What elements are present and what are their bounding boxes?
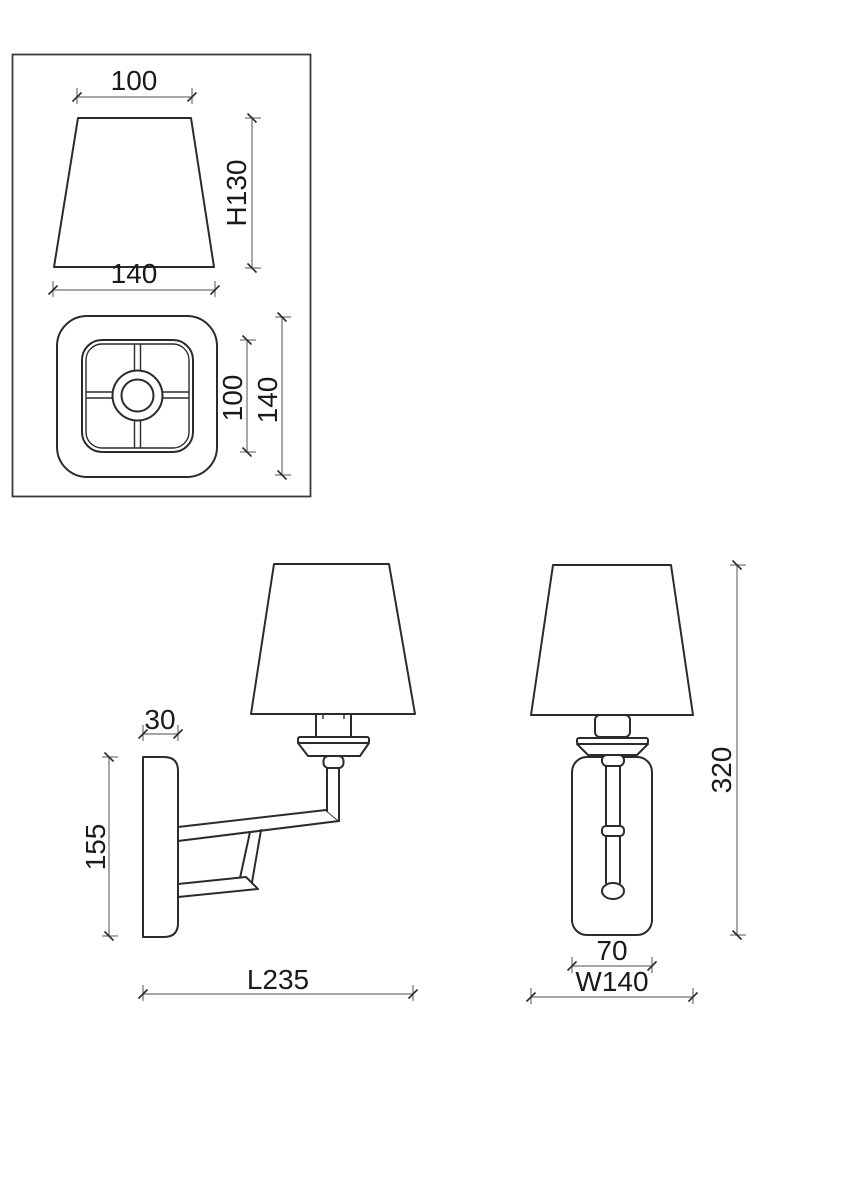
dim-label-shade-bottom-width: 140 [111,258,158,289]
shade-trapezoid [54,118,214,267]
sconce-front-view: 320 70 W140 [531,565,737,997]
stem-bead-front [602,826,624,836]
dim-label-topview-outer: 140 [252,377,283,424]
shade-side [251,564,415,714]
sconce-side-view: 30 155 L235 [80,564,415,995]
socket-side [316,714,351,737]
dim-label-plate-height: 155 [80,824,111,871]
stem-collar-side [324,756,344,768]
lamp-dimension-drawing: 100 140 H130 100 140 [0,0,847,1200]
dim-label-projection-length: L235 [247,964,309,995]
lower-arm [178,877,258,897]
dim-label-shade-width: W140 [575,966,648,997]
upper-arm [178,810,339,841]
socket-ring-inner [122,380,154,412]
dim-label-topview-inner: 100 [217,375,248,422]
technical-drawing-sheet: 100 140 H130 100 140 [0,0,847,1200]
dim-label-shade-height: H130 [221,160,252,227]
inset-panel: 100 140 H130 100 140 [13,55,311,497]
bobeche-rim-front [577,738,648,744]
bobeche-cone-front [577,744,648,755]
stem-collar-front [602,755,624,766]
shade-front [531,565,693,715]
dim-label-plate-depth: 30 [144,704,175,735]
bobeche-cone-side [298,743,369,756]
wall-plate-side [143,757,178,937]
dim-label-overall-height: 320 [706,747,737,794]
dim-label-plate-width: 70 [596,935,627,966]
socket-front [595,715,630,737]
stem-fill-patch-front [606,766,620,883]
stem-ball-finial [602,883,624,899]
dim-label-shade-top-width: 100 [111,65,158,96]
